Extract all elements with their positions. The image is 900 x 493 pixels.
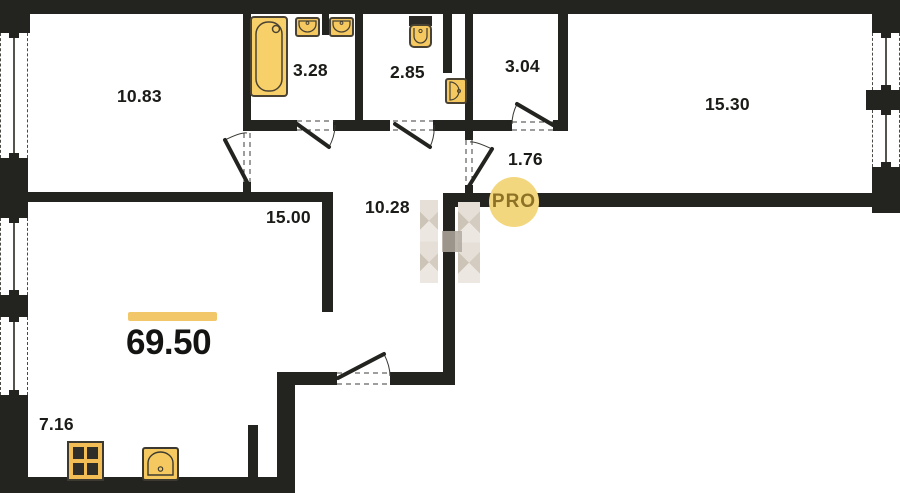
- hatched-panel-icon: [420, 200, 438, 283]
- area-label-entry: 1.76: [508, 149, 543, 170]
- window-tick: [9, 153, 19, 158]
- washbasin-icon: [295, 17, 320, 37]
- bathtub-icon: [250, 16, 288, 97]
- area-label-hall: 10.28: [365, 197, 410, 218]
- window-tick: [881, 33, 891, 38]
- window-tick: [9, 33, 19, 38]
- window-frame: [13, 317, 15, 395]
- window-tick: [9, 218, 19, 223]
- total-area-label: 69.50: [126, 323, 211, 363]
- door-living-15-00: [333, 347, 393, 387]
- window-left-2: [0, 218, 28, 295]
- window-frame: [13, 33, 15, 158]
- accent-underline: [128, 312, 217, 321]
- window-frame: [885, 33, 887, 90]
- wall-bath-wc: [355, 14, 363, 131]
- door-storage-3-04: [508, 96, 556, 134]
- window-right-2: [872, 110, 900, 167]
- door-wc-2-85: [393, 116, 437, 152]
- wall-right-pier: [866, 90, 900, 110]
- wall-corridor-c: [433, 120, 512, 131]
- washbasin-icon: [445, 78, 467, 104]
- window-right-1: [872, 33, 900, 90]
- area-label-bath: 3.28: [293, 60, 328, 81]
- area-label-kitchen: 7.16: [39, 414, 74, 435]
- area-label-living: 15.00: [266, 207, 311, 228]
- window-tick: [881, 162, 891, 167]
- wall-living-top: [28, 192, 333, 202]
- stove-icon: [67, 441, 104, 481]
- wall-hall-left: [322, 202, 333, 312]
- toilet-icon: [408, 16, 433, 49]
- window-tick: [881, 85, 891, 90]
- washbasin-icon: [329, 17, 354, 37]
- floor-plan: 10.83 3.28 2.85 3.04 15.30 1.76 10.28 15…: [0, 0, 900, 493]
- window-left-3: [0, 317, 28, 395]
- area-label-bedroom: 15.30: [705, 94, 750, 115]
- window-frame: [13, 218, 15, 295]
- area-label-storage: 3.04: [505, 56, 540, 77]
- wall-top-right-corner: [872, 14, 900, 33]
- kitchen-sink-icon: [142, 447, 179, 481]
- area-label-room: 10.83: [117, 86, 162, 107]
- window-tick: [9, 317, 19, 322]
- window-tick: [9, 290, 19, 295]
- wall-bottom-mid-b: [390, 372, 445, 385]
- hatch-block-icon: [442, 231, 462, 252]
- wall-top-left-corner: [0, 14, 30, 33]
- wall-top: [0, 0, 900, 14]
- window-tick: [881, 110, 891, 115]
- wall-left-pier-2: [0, 295, 28, 317]
- pro-badge-label: PRO: [492, 191, 536, 213]
- wall-sink-divider: [322, 14, 329, 35]
- wall-niche: [248, 425, 258, 478]
- window-left-1: [0, 33, 28, 158]
- door-room-10-83: [216, 128, 254, 186]
- window-tick: [9, 390, 19, 395]
- door-entry-1-76: [461, 135, 497, 189]
- wall-shaft-left: [443, 14, 452, 73]
- wall-storage-bedroom: [558, 14, 568, 131]
- pro-badge: PRO: [489, 177, 539, 227]
- door-bath-3-28: [295, 116, 339, 152]
- wall-left-pier-1: [0, 158, 28, 218]
- window-frame: [885, 110, 887, 167]
- wall-kitchen-right: [277, 372, 295, 493]
- wall-corridor-b: [333, 120, 390, 131]
- area-label-wc: 2.85: [390, 62, 425, 83]
